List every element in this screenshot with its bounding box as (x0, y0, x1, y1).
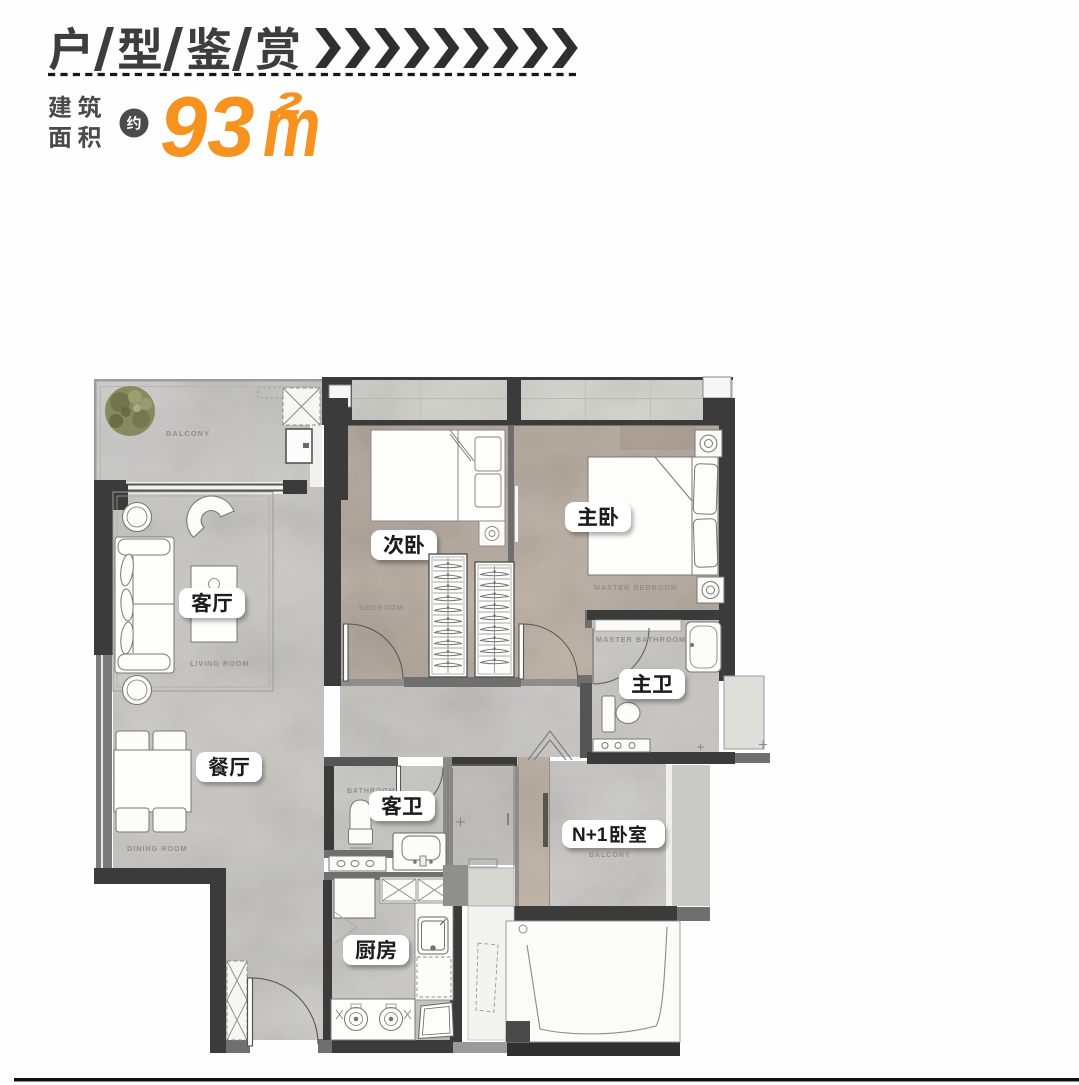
svg-text:LIVING ROOM: LIVING ROOM (190, 659, 249, 668)
svg-text:BEDROOM: BEDROOM (359, 603, 404, 612)
svg-text:93: 93 (160, 80, 255, 175)
svg-text:BALCONY: BALCONY (589, 852, 631, 859)
svg-text:MASTER BEDROOM: MASTER BEDROOM (594, 583, 678, 592)
svg-text:MASTER BATHROOM: MASTER BATHROOM (596, 635, 686, 644)
svg-text:N+1: N+1 (572, 825, 608, 846)
svg-text:2: 2 (275, 87, 302, 122)
svg-text:DINING ROOM: DINING ROOM (127, 844, 188, 853)
svg-text:BALCONY: BALCONY (166, 429, 210, 438)
